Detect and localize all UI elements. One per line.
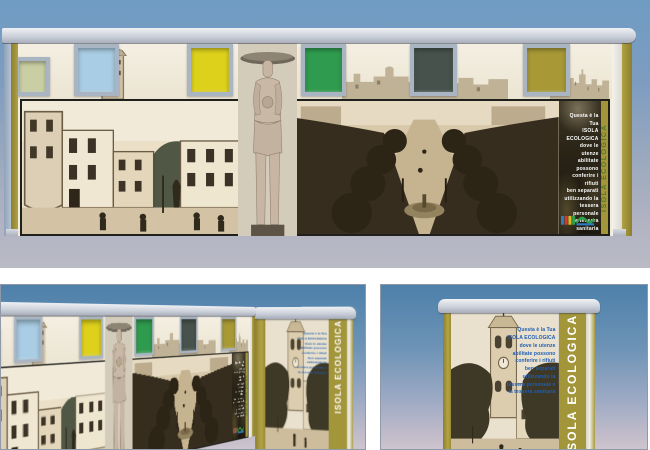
recycling-station-front: Questa è la Tua ISOLA ECOLOGICA dove le …	[4, 28, 632, 244]
isola-ecologica-band: ISOLA ECOLOGICA	[245, 353, 247, 438]
statue-photo	[238, 43, 297, 236]
deposit-hatch-2[interactable]	[74, 44, 120, 96]
statue-photo	[105, 316, 133, 450]
deposit-hatch-6[interactable]	[221, 317, 236, 351]
roof-trim	[0, 301, 256, 316]
isola-ecologica-label: ISOLA ECOLOGICA	[333, 320, 342, 414]
avenue-fountain-photo	[130, 354, 233, 450]
isola-ecologica-label: ISOLA ECOLOGICA	[601, 124, 608, 212]
upper-photo-band	[18, 43, 612, 99]
view-perspective: Questa è la Tua ISOLA ECOLOGICA dove le …	[0, 284, 366, 450]
end-face-body: Questa è la Tua ISOLA ECOLOGICA dove le …	[255, 319, 353, 450]
info-panel: Questa è la Tua ISOLA ECOLOGICA dove le …	[232, 353, 245, 441]
avenue-fountain-photo	[290, 101, 559, 234]
roof-cap	[438, 299, 599, 313]
left-foot	[6, 229, 19, 236]
end-face-body: Questa è la Tua ISOLA ECOLOGICA dove le …	[443, 313, 595, 450]
deposit-hatch-3[interactable]	[79, 317, 103, 360]
deposit-hatch-2[interactable]	[15, 317, 43, 364]
deposit-hatch-3[interactable]	[187, 44, 234, 96]
roof-trim	[2, 28, 636, 43]
view-front-elevation: Questa è la Tua ISOLA ECOLOGICA dove le …	[0, 0, 650, 268]
left-olive-strip	[11, 43, 18, 236]
deposit-hatch-6[interactable]	[523, 44, 570, 96]
recycling-station-end: Questa è la Tua ISOLA ECOLOGICA dove le …	[443, 299, 595, 450]
left-corner-post	[4, 43, 11, 236]
deposit-hatch-5[interactable]	[180, 317, 198, 354]
station-body: Questa è la Tua ISOLA ECOLOGICA dove le …	[4, 43, 632, 236]
right-edge-strip	[612, 43, 622, 236]
isola-ecologica-band: ISOLA ECOLOGICA	[601, 101, 608, 234]
roof-cap	[252, 306, 356, 319]
end-info-message: Questa è la Tua ISOLA ECOLOGICA dove le …	[476, 327, 555, 397]
recycling-station-end-perspective: Questa è la Tua ISOLA ECOLOGICA dove le …	[255, 306, 353, 450]
lower-photo-band: Questa è la Tua ISOLA ECOLOGICA dove le …	[20, 99, 611, 236]
right-edge-strip	[586, 313, 595, 450]
station-body: Questa è la Tua ISOLA ECOLOGICA dove le …	[0, 316, 255, 450]
front-face: Questa è la Tua ISOLA ECOLOGICA dove le …	[18, 43, 612, 236]
info-panel: Questa è la Tua ISOLA ECOLOGICA dove le …	[559, 101, 601, 234]
corner-olive-post	[255, 319, 265, 450]
isola-ecologica-band: ISOLA ECOLOGICA	[329, 319, 347, 450]
right-foot	[613, 229, 626, 236]
company-logo	[233, 424, 244, 436]
end-info-message: Questa è la Tua ISOLA ECOLOGICA dove le …	[276, 332, 327, 376]
deposit-hatch-4[interactable]	[135, 317, 155, 357]
isola-ecologica-label: ISOLA ECOLOGICA	[245, 374, 247, 415]
deposit-hatch-4[interactable]	[301, 44, 346, 96]
view-end-elevation: Questa è la Tua ISOLA ECOLOGICA dove le …	[380, 284, 648, 450]
deposit-hatch-1[interactable]	[18, 57, 51, 96]
recycling-station-front-perspective: Questa è la Tua ISOLA ECOLOGICA dove le …	[0, 301, 255, 450]
info-message: Questa è la Tua ISOLA ECOLOGICA dove le …	[233, 360, 245, 419]
perspective-scene: Questa è la Tua ISOLA ECOLOGICA dove le …	[1, 285, 365, 449]
isola-ecologica-band: ISOLA ECOLOGICA	[559, 313, 586, 450]
right-edge-strip	[347, 319, 353, 450]
front-face: Questa è la Tua ISOLA ECOLOGICA dove le …	[0, 316, 249, 450]
right-olive-strip	[622, 43, 632, 236]
corner-olive-post	[443, 313, 451, 450]
company-logo	[561, 213, 595, 228]
deposit-hatch-5[interactable]	[410, 44, 457, 96]
isola-ecologica-label: ISOLA ECOLOGICA	[565, 314, 579, 450]
right-olive-strip	[252, 316, 255, 437]
